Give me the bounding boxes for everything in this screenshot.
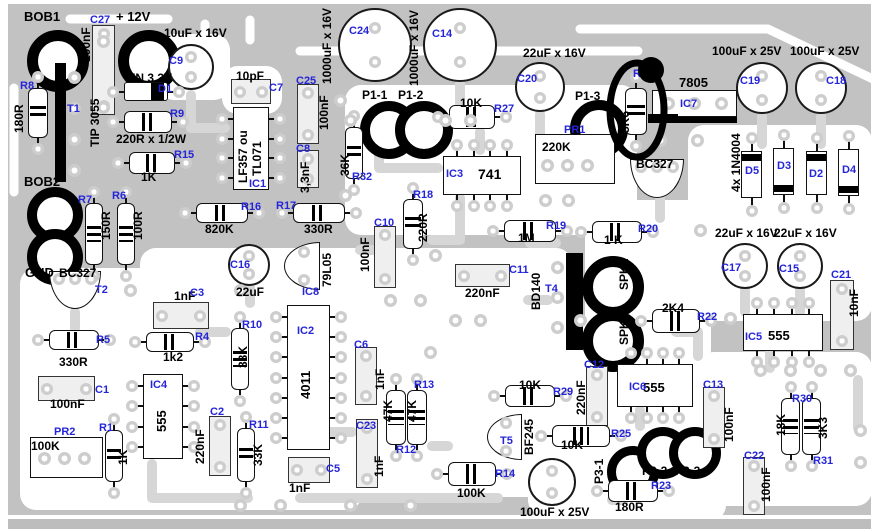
solder-pad <box>746 132 758 144</box>
solder-pad <box>270 311 282 323</box>
designator-C20: C20 <box>517 74 537 85</box>
solder-pad <box>854 456 867 469</box>
label-P3-2: P3-2 <box>642 465 667 477</box>
solder-pad <box>784 364 797 377</box>
label-100nF: 100nF <box>50 398 85 410</box>
solder-pad <box>129 336 141 348</box>
designator-R25: R25 <box>611 429 631 440</box>
designator-IC3: IC3 <box>446 169 463 180</box>
label-SPK1: SPK1 <box>618 259 630 290</box>
label-1k2: 1k2 <box>163 351 183 363</box>
designator-C6: C6 <box>354 340 368 351</box>
label-1000uF-x-16V: 1000uF x 16V <box>408 10 420 86</box>
label-555: 555 <box>643 381 665 394</box>
solder-pad <box>439 114 452 127</box>
label-22uF-x-16V: 22uF x 16V <box>774 227 837 239</box>
solder-pad <box>431 468 443 480</box>
terminal-pad-SPK1 <box>582 256 644 318</box>
label-3-3nF: 3,3nF <box>299 162 311 193</box>
solder-pad <box>68 71 81 84</box>
label-4011: 4011 <box>299 371 312 399</box>
solder-pad <box>754 364 767 377</box>
resistor-R4 <box>146 332 194 352</box>
regulator-tab <box>658 117 737 123</box>
solder-pad <box>562 194 575 207</box>
designator-IC1: IC1 <box>249 179 266 190</box>
label-P1-2: P1-2 <box>398 89 423 101</box>
designator-T1: T1 <box>67 104 80 115</box>
solder-pad <box>173 86 185 98</box>
label-18K: 18K <box>775 414 787 436</box>
designator-C10: C10 <box>374 218 394 229</box>
solder-pad <box>335 412 347 424</box>
label-100uF-x-25V: 100uF x 25V <box>520 506 589 518</box>
solder-pad <box>474 314 487 327</box>
solder-pad <box>429 249 442 262</box>
solder-pad <box>379 273 391 285</box>
solder-pad <box>844 364 857 377</box>
pcb-layout-diagram: ++++++++++−− BOB1+ 12V10uF x 16V10pFZN 3… <box>0 0 877 529</box>
label-TIP-3055: TIP 3055 <box>89 99 101 147</box>
label-1-K: 1 K <box>604 234 623 246</box>
solder-pad <box>657 412 669 424</box>
solder-pad <box>335 372 347 384</box>
designator-IC2: IC2 <box>297 326 314 337</box>
solder-pad <box>501 200 513 212</box>
solder-pad <box>298 274 310 286</box>
solder-pad <box>836 335 848 347</box>
label-BC327: BC327 <box>636 158 673 170</box>
label-1nF: 1nF <box>374 369 386 390</box>
designator-C25: C25 <box>296 76 316 87</box>
solder-pad <box>234 86 246 98</box>
designator-IC5: IC5 <box>745 332 762 343</box>
solder-pad <box>803 297 815 309</box>
label-GND: GND <box>25 266 54 279</box>
solder-pad <box>581 159 594 172</box>
label-820K: 820K <box>205 223 234 235</box>
solder-pad <box>41 383 53 395</box>
solder-pad <box>451 139 463 151</box>
solder-pad <box>673 347 685 359</box>
designator-C9: C9 <box>169 56 183 67</box>
solder-pad <box>657 347 669 359</box>
solder-pad <box>449 314 462 327</box>
solder-pad <box>814 364 827 377</box>
designator-C14: C14 <box>432 29 452 40</box>
designator-C23: C23 <box>356 421 376 432</box>
solder-pad <box>214 461 226 473</box>
label-47K: 47K <box>382 400 394 422</box>
solder-pad <box>302 129 314 141</box>
solder-pad <box>501 139 513 151</box>
designator-D1: D1 <box>158 84 172 95</box>
designator-T4: T4 <box>545 284 558 295</box>
solder-pad <box>194 310 206 322</box>
solder-pad <box>214 419 226 431</box>
solder-pad <box>124 284 137 297</box>
designator-R14: R14 <box>495 469 515 480</box>
label-1000uF-x-16V: 1000uF x 16V <box>321 8 333 84</box>
solder-pad <box>32 334 44 346</box>
designator-R17: R17 <box>276 201 296 212</box>
label-3K3: 3K3 <box>817 417 829 439</box>
label-100uF-x-25V: 100uF x 25V <box>790 45 859 57</box>
designator-R30: R30 <box>792 394 812 405</box>
designator-R31: R31 <box>813 456 833 467</box>
solder-pad <box>126 380 138 392</box>
designator-IC4: IC4 <box>150 380 167 391</box>
solder-pad <box>78 452 91 465</box>
label-220K: 220K <box>542 141 571 153</box>
label-10K: 10K <box>519 379 541 391</box>
solder-pad <box>778 129 790 141</box>
solder-pad <box>806 381 818 393</box>
designator-C24: C24 <box>349 26 369 37</box>
label-741: 741 <box>478 167 501 181</box>
label-22uF-x-16V: 22uF x 16V <box>523 47 586 59</box>
solder-pad <box>551 321 564 334</box>
solder-pad <box>794 250 806 262</box>
solder-pad <box>739 250 751 262</box>
solder-pad <box>126 421 138 433</box>
solder-pad <box>539 194 552 207</box>
label-BD140: BD140 <box>530 273 542 310</box>
solder-pad <box>724 312 737 325</box>
label-79L05: 79L05 <box>321 253 333 287</box>
solder-pad <box>468 200 480 212</box>
label-10pF: 10pF <box>236 70 264 82</box>
solder-pad <box>424 346 437 359</box>
solder-pad <box>298 246 310 258</box>
label-7805: 7805 <box>679 76 708 89</box>
label-100R: 100R <box>132 211 144 240</box>
designator-C8: C8 <box>296 144 310 155</box>
label-P1-1: P1-1 <box>362 89 387 101</box>
solder-pad <box>120 270 132 282</box>
label-1M: 1M <box>518 232 535 244</box>
solder-pad <box>274 172 286 184</box>
solder-pad <box>843 130 855 142</box>
solder-pad <box>468 139 480 151</box>
label-33K: 33K <box>252 444 264 466</box>
label-SPK2: SPK2 <box>618 314 630 345</box>
designator-PR2: PR2 <box>54 427 75 438</box>
designator-C18: C18 <box>826 76 846 87</box>
solder-pad <box>495 270 507 282</box>
solder-pad <box>234 395 246 407</box>
solder-pad <box>708 390 720 402</box>
solder-pad <box>302 87 314 99</box>
designator-T2: T2 <box>95 285 108 296</box>
solder-pad <box>80 383 92 395</box>
designator-R9: R9 <box>170 109 184 120</box>
solder-pad <box>756 94 768 106</box>
designator-C15: C15 <box>779 264 799 275</box>
resistor-R14 <box>448 462 496 486</box>
solder-pad <box>291 464 303 476</box>
designator-R27: R27 <box>494 104 514 115</box>
label-+-12V: + 12V <box>116 10 150 23</box>
label-330R: 330R <box>304 223 333 235</box>
label-150R: 150R <box>100 211 112 240</box>
solder-pad <box>785 381 797 393</box>
designator-C13: C13 <box>703 380 723 391</box>
label-100nF: 100nF <box>359 237 371 272</box>
label-180R: 180R <box>615 501 644 513</box>
solder-pad <box>179 207 191 219</box>
solder-pad <box>786 297 798 309</box>
solder-pad <box>107 116 119 128</box>
label-5K6: 5K6 <box>619 111 631 133</box>
solder-pad <box>384 294 397 307</box>
label-P3-1: P3-1 <box>593 459 605 484</box>
solder-pad <box>635 315 647 327</box>
solder-pad <box>414 294 427 307</box>
label-220nF: 220nF <box>194 429 206 464</box>
label-BOB1: BOB1 <box>24 10 60 23</box>
label-100nF: 100nF <box>723 407 735 442</box>
solder-pad <box>360 390 372 402</box>
solder-pad <box>535 430 547 442</box>
label-10K: 10K <box>460 97 482 109</box>
solder-pad <box>407 254 419 266</box>
label-100nF: 100nF <box>760 467 772 502</box>
solder-pad <box>694 224 707 237</box>
label-1K: 1K <box>141 171 156 183</box>
designator-C7: C7 <box>269 83 283 94</box>
solder-pad <box>335 432 347 444</box>
solder-pad <box>274 133 286 145</box>
solder-pad <box>240 487 252 499</box>
label-P1-3: P1-3 <box>575 90 600 102</box>
label-10uF-x-16V: 10uF x 16V <box>164 27 227 39</box>
solder-pad <box>458 270 470 282</box>
solder-pad <box>344 114 357 127</box>
designator-R32: R32 <box>352 172 372 183</box>
label-555: 555 <box>768 329 790 342</box>
designator-PR1: PR1 <box>564 125 585 136</box>
solder-pad <box>216 133 228 145</box>
solder-pad <box>270 412 282 424</box>
designator-C2: C2 <box>210 407 224 418</box>
solder-pad <box>625 412 637 424</box>
solder-pad <box>691 134 704 147</box>
solder-pad <box>785 460 797 472</box>
label-BF245: BF245 <box>523 419 535 455</box>
solder-pad <box>339 189 352 202</box>
designator-R19: R19 <box>546 221 566 232</box>
solder-pad <box>270 432 282 444</box>
designator-R23: R23 <box>651 481 671 492</box>
designator-R6: R6 <box>112 191 126 202</box>
solder-pad <box>350 207 362 219</box>
solder-pad <box>188 380 200 392</box>
label-33K: 33K <box>237 346 249 368</box>
designator-C27: C27 <box>90 15 110 26</box>
label-BOB2: BOB2 <box>24 175 60 188</box>
solder-pad <box>488 390 500 402</box>
terminal-pad-P1-2 <box>395 101 453 159</box>
designator-D3: D3 <box>777 161 791 172</box>
designator-D4: D4 <box>842 165 856 176</box>
solder-pad <box>216 172 228 184</box>
designator-C21: C21 <box>831 270 851 281</box>
solder-pad <box>451 200 463 212</box>
power-transistor-T1 <box>55 63 66 182</box>
designator-IC8: IC8 <box>302 287 319 298</box>
solder-pad <box>803 356 815 368</box>
label-1nF: 1nF <box>289 482 310 494</box>
solder-pad <box>811 202 823 214</box>
designator-C5: C5 <box>326 464 340 475</box>
solder-pad <box>335 392 347 404</box>
solder-pad <box>97 35 110 48</box>
resistor-R9 <box>124 111 172 133</box>
resistor-R8 <box>28 88 48 138</box>
label-100K: 100K <box>457 487 486 499</box>
solder-pad <box>778 202 790 214</box>
label-47K: 47K <box>406 400 418 422</box>
designator-D5: D5 <box>745 166 759 177</box>
solder-pad <box>107 86 119 98</box>
label-330R: 330R <box>59 356 88 368</box>
solder-pad <box>216 113 228 125</box>
solder-pad <box>591 485 603 497</box>
label-100nF: 100nF <box>80 27 92 62</box>
label-555: 555 <box>155 410 168 432</box>
label-100uF-x-25V: 100uF x 25V <box>712 45 781 57</box>
label-10nF: 10nF <box>848 289 860 317</box>
solder-pad <box>574 314 587 327</box>
designator-D2: D2 <box>809 169 823 180</box>
designator-R29: R29 <box>553 387 573 398</box>
designator-C22: C22 <box>744 451 764 462</box>
designator-C11: C11 <box>509 265 529 276</box>
solder-pad <box>185 51 197 63</box>
label-220R-x-1-2W: 220R x 1/2W <box>116 133 186 145</box>
solder-pad <box>500 417 512 429</box>
label-10K: 10K <box>561 439 583 451</box>
solder-pad <box>404 499 417 512</box>
label-22uF: 22uF <box>236 286 264 298</box>
solder-pad <box>654 134 667 147</box>
solder-pad <box>641 347 653 359</box>
designator-R16: R16 <box>241 202 261 213</box>
solder-pad <box>360 350 372 362</box>
solder-pad <box>843 203 855 215</box>
solder-pad <box>541 159 554 172</box>
designator-C19: C19 <box>740 76 760 87</box>
solder-pad <box>811 132 823 144</box>
solder-pad <box>234 499 247 512</box>
designator-T5: T5 <box>500 436 513 447</box>
solder-pad <box>551 261 564 274</box>
label-BC327: BC327 <box>59 267 96 279</box>
designator-R10: R10 <box>242 320 262 331</box>
solder-pad <box>156 310 168 322</box>
label-1K: 1K <box>117 450 129 465</box>
designator-R5: R5 <box>96 335 110 346</box>
label-2K4: 2K4 <box>662 302 684 314</box>
solder-pad <box>591 411 603 423</box>
solder-pad <box>715 97 728 110</box>
designator-R24: R24 <box>633 69 653 80</box>
solder-pad <box>625 347 637 359</box>
solder-pad <box>270 392 282 404</box>
designator-R20: R20 <box>638 224 658 235</box>
designator-R11: R11 <box>249 420 269 431</box>
label-4x-1N4004: 4x 1N4004 <box>730 133 742 192</box>
solder-pad <box>575 226 587 238</box>
designator-C12: C12 <box>584 360 604 371</box>
label-100nF: 100nF <box>318 95 330 130</box>
designator-IC6: IC6 <box>629 382 646 393</box>
designator-R13: R13 <box>414 380 434 391</box>
solder-pad <box>454 56 466 68</box>
solder-pad <box>561 159 574 172</box>
solder-pad <box>641 412 653 424</box>
solder-pad <box>274 499 287 512</box>
designator-R12: R12 <box>396 445 416 456</box>
designator-C17: C17 <box>721 263 741 274</box>
solder-pad <box>256 86 268 98</box>
solder-pad <box>487 225 499 237</box>
label-220nF: 220nF <box>465 287 500 299</box>
label-36K: 36K <box>339 154 351 176</box>
resistor-R17 <box>293 203 345 223</box>
label-P3-3: P3-3 <box>675 465 700 477</box>
label-LF357-ou: LF357 ou <box>237 130 249 183</box>
designator-C3: C3 <box>190 288 204 299</box>
solder-pad <box>58 452 71 465</box>
label-22uF-x-16V: 22uF x 16V <box>715 227 778 239</box>
resistor-R5 <box>49 330 99 350</box>
designator-R15: R15 <box>174 150 194 161</box>
solder-pad <box>854 424 867 437</box>
label-100K: 100K <box>31 440 60 452</box>
designator-C1: C1 <box>95 385 109 396</box>
designator-R8: R8 <box>20 81 34 92</box>
solder-pad <box>369 56 381 68</box>
solder-pad <box>68 164 81 177</box>
designator-R22: R22 <box>697 312 717 323</box>
solder-pad <box>68 133 81 146</box>
solder-pad <box>546 487 558 499</box>
solder-pad <box>708 433 720 445</box>
solder-pad <box>32 143 44 155</box>
solder-pad <box>390 373 402 385</box>
designator-C16: C16 <box>230 260 250 271</box>
solder-pad <box>112 157 124 169</box>
power-transistor-T4 <box>566 253 583 350</box>
label-220R: 220R <box>417 213 429 242</box>
solder-pad <box>673 412 685 424</box>
solder-pad <box>334 94 347 107</box>
solder-pad <box>344 499 357 512</box>
solder-pad <box>108 487 120 499</box>
designator-R18: R18 <box>413 190 433 201</box>
solder-pad <box>270 372 282 384</box>
solder-pad <box>335 311 347 323</box>
label-180R: 180R <box>13 104 25 133</box>
designator-R1: R1 <box>99 423 113 434</box>
designator-IC7: IC7 <box>680 99 697 110</box>
label-220nF: 220nF <box>575 380 587 415</box>
solder-pad <box>630 140 642 152</box>
label-1nF: 1nF <box>373 456 385 477</box>
solder-pad <box>464 114 477 127</box>
